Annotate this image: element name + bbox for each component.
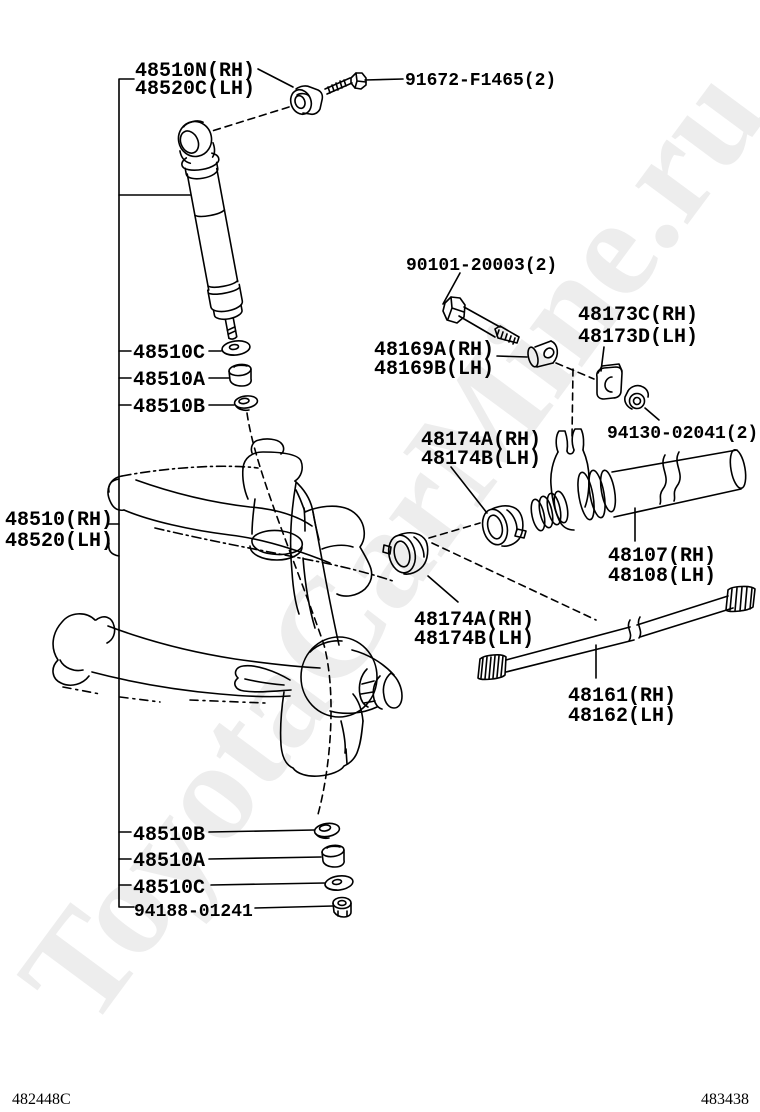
svg-text:90101-20003(2): 90101-20003(2) <box>406 256 557 276</box>
svg-text:94188-01241: 94188-01241 <box>134 902 253 922</box>
svg-text:48174B(LH): 48174B(LH) <box>414 628 534 651</box>
svg-text:48520(LH): 48520(LH) <box>5 530 113 553</box>
svg-text:48108(LH): 48108(LH) <box>608 565 716 588</box>
svg-text:94130-02041(2): 94130-02041(2) <box>607 424 758 444</box>
svg-text:91672-F1465(2): 91672-F1465(2) <box>405 71 556 91</box>
svg-text:48174B(LH): 48174B(LH) <box>421 448 541 471</box>
svg-text:48510B: 48510B <box>133 396 205 419</box>
svg-text:48520C(LH): 48520C(LH) <box>135 78 255 101</box>
svg-text:48173C(RH): 48173C(RH) <box>578 304 698 327</box>
svg-text:48169B(LH): 48169B(LH) <box>374 358 494 381</box>
svg-text:48510A: 48510A <box>133 369 205 392</box>
svg-text:48510C: 48510C <box>133 877 205 900</box>
svg-text:48510C: 48510C <box>133 342 205 365</box>
svg-text:483438: 483438 <box>701 1091 749 1108</box>
svg-text:48510(RH): 48510(RH) <box>5 509 113 532</box>
svg-text:48173D(LH): 48173D(LH) <box>578 326 698 349</box>
svg-text:48510B: 48510B <box>133 824 205 847</box>
svg-text:482448C: 482448C <box>12 1091 71 1108</box>
svg-text:48162(LH): 48162(LH) <box>568 705 676 728</box>
svg-text:48510A: 48510A <box>133 850 205 873</box>
